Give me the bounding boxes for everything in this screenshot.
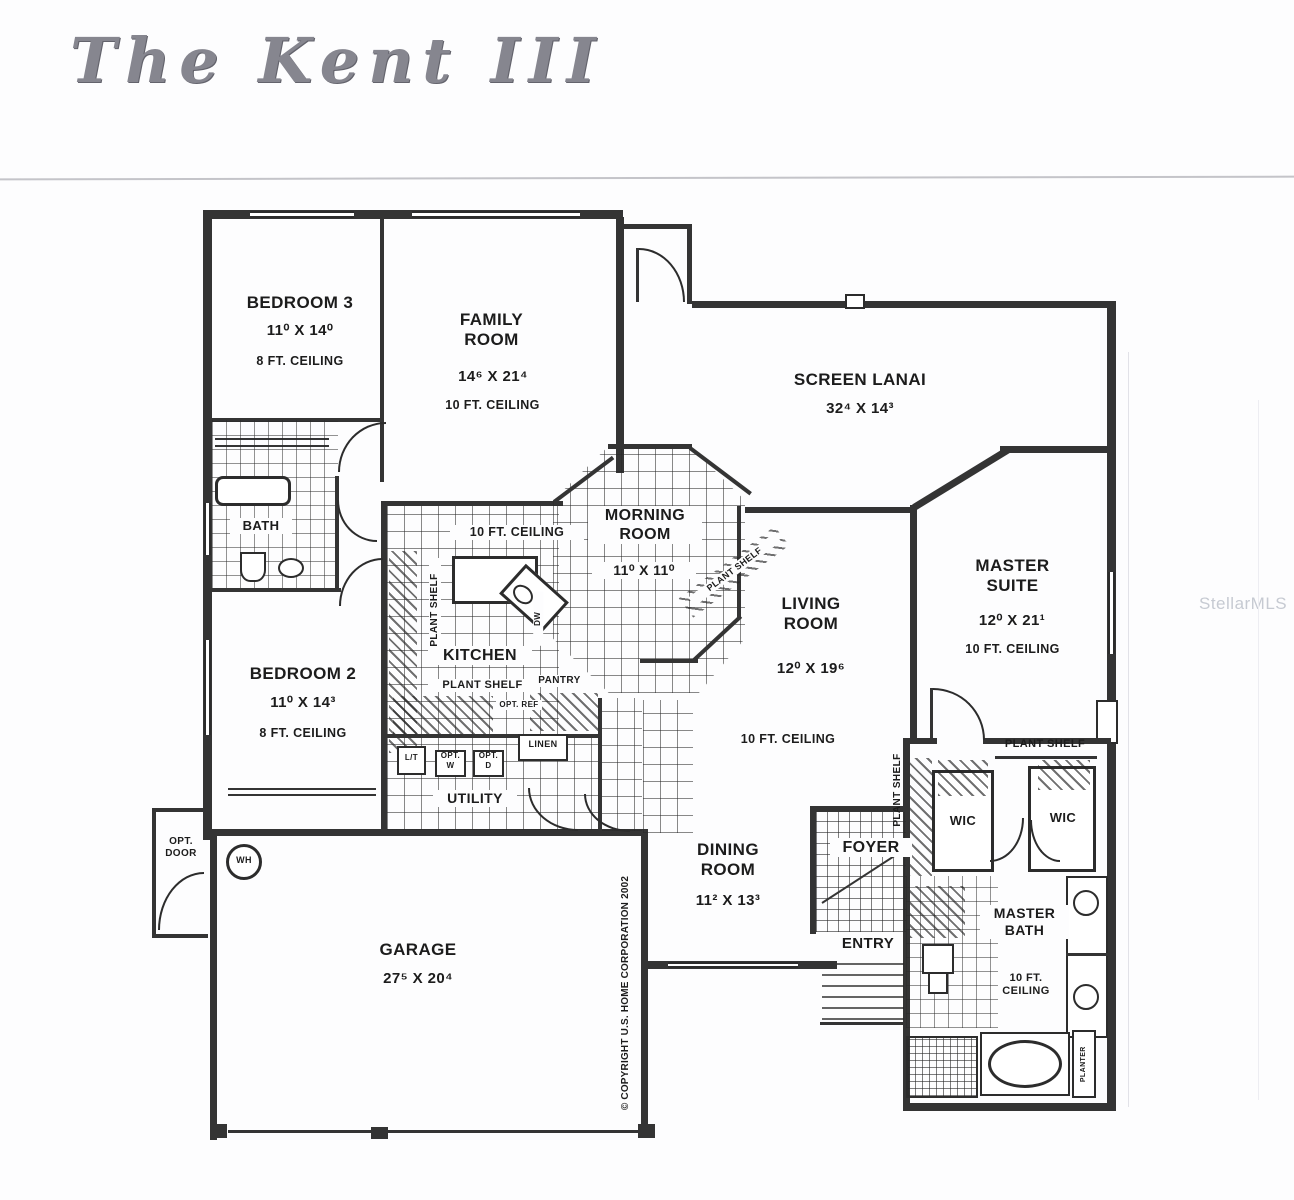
plant-shelf-label: PLANT SHELF xyxy=(995,738,1095,751)
wall-stub xyxy=(210,1124,227,1138)
watermark: StellarMLS xyxy=(1199,594,1287,614)
wall xyxy=(995,756,1097,759)
wall-stub xyxy=(371,1127,388,1139)
room-label-wic-right: WIC xyxy=(1040,810,1086,826)
water-heater-label: WH xyxy=(226,855,262,866)
shelf-line xyxy=(228,794,376,796)
sink xyxy=(278,558,304,578)
dims-dining-room: 11² X 13³ xyxy=(678,892,778,910)
wall xyxy=(1107,446,1116,1111)
wall-diagonal xyxy=(912,446,1011,510)
door-arc xyxy=(639,248,685,302)
toilet xyxy=(922,944,954,974)
sink xyxy=(1073,890,1099,916)
room-label-master-suite: MASTER SUITE xyxy=(960,556,1065,597)
room-label-living-room: LIVING ROOM xyxy=(765,594,857,635)
page-edge-line xyxy=(1128,352,1129,1107)
planter-label: PLANTER xyxy=(1080,1034,1088,1094)
room-label-bedroom2: BEDROOM 2 xyxy=(238,664,368,684)
room-label-garage: GARAGE xyxy=(368,940,468,960)
window xyxy=(250,211,354,218)
toilet xyxy=(240,552,266,582)
wall xyxy=(910,505,917,743)
wall xyxy=(210,829,648,836)
plant-shelf-hatch xyxy=(1038,760,1090,790)
dims-bedroom2: 11⁰ X 14³ xyxy=(255,694,351,712)
wall xyxy=(616,217,624,473)
room-label-bedroom3: BEDROOM 3 xyxy=(235,293,365,313)
tile-floor-hall xyxy=(643,700,693,833)
vanity-divider xyxy=(1066,953,1108,956)
bathtub xyxy=(215,476,291,506)
wall xyxy=(152,808,156,938)
door-arc xyxy=(933,688,985,740)
opt-washer-label: OPT. W xyxy=(437,751,464,770)
ceiling-master-bath: 10 FT. CEILING xyxy=(994,972,1058,998)
ceiling-master-suite: 10 FT. CEILING xyxy=(955,642,1070,657)
lanai-post xyxy=(845,294,865,309)
garage-door xyxy=(228,1130,374,1133)
linen-label: LINEN xyxy=(521,739,565,750)
wall xyxy=(152,934,208,938)
tub xyxy=(988,1040,1062,1088)
room-label-kitchen: KITCHEN xyxy=(428,646,532,665)
plan-title: The Kent III xyxy=(70,24,605,97)
room-label-wic-left: WIC xyxy=(940,813,986,829)
plant-shelf-label: PLANT SHELF xyxy=(428,679,537,692)
wall xyxy=(692,301,1115,308)
plant-shelf-label: PLANT SHELF xyxy=(429,558,441,662)
garage-door xyxy=(388,1130,640,1133)
dims-screen-lanai: 32⁴ X 14³ xyxy=(785,400,935,418)
sink xyxy=(1073,984,1099,1010)
room-label-utility: UTILITY xyxy=(433,790,517,807)
shower xyxy=(906,1036,978,1098)
door-arc xyxy=(337,500,377,542)
dims-master-suite: 12⁰ X 21¹ xyxy=(962,612,1062,630)
wall xyxy=(687,224,692,304)
ceiling-living-room: 10 FT. CEILING xyxy=(728,732,848,747)
door-arc xyxy=(990,818,1024,862)
wall xyxy=(210,836,217,1140)
plant-shelf-label: PLANT SHELF xyxy=(892,740,904,840)
header-divider xyxy=(0,176,1294,181)
room-label-foyer: FOYER xyxy=(830,838,912,857)
dims-morning-room: 11⁰ X 11⁰ xyxy=(592,562,696,579)
wall xyxy=(335,476,339,590)
dims-garage: 27⁵ X 20⁴ xyxy=(366,970,470,988)
door-arc xyxy=(338,422,386,472)
wall xyxy=(1107,301,1116,453)
opt-door-label: OPT. DOOR xyxy=(158,836,204,860)
room-label-morning-room: MORNING ROOM xyxy=(588,506,702,544)
window xyxy=(204,503,211,555)
dims-family-room: 14⁶ X 21⁴ xyxy=(443,368,543,386)
dims-living-room: 12⁰ X 19⁶ xyxy=(763,660,859,678)
wall-stub xyxy=(638,1124,655,1138)
wall xyxy=(903,1103,1116,1111)
wall xyxy=(820,1022,906,1025)
room-label-master-bath: MASTER BATH xyxy=(980,905,1069,939)
window xyxy=(412,211,580,218)
wall xyxy=(608,444,692,449)
window xyxy=(1108,572,1115,654)
opt-dryer-label: OPT. D xyxy=(475,751,502,770)
ceiling-bedroom3: 8 FT. CEILING xyxy=(245,354,355,369)
laundry-tub-label: L/T xyxy=(399,753,424,763)
dishwasher-label: DW xyxy=(533,592,543,646)
ceiling-kitchen: 10 FT. CEILING xyxy=(450,525,584,540)
room-label-bath: BATH xyxy=(230,518,292,534)
wall xyxy=(211,588,341,592)
shelf-line xyxy=(228,788,376,790)
counter-hatch xyxy=(393,696,493,734)
wall xyxy=(1000,446,1112,453)
window xyxy=(668,962,798,968)
plant-shelf-hatch xyxy=(938,760,988,796)
window xyxy=(204,640,211,735)
steps-hatch xyxy=(910,886,965,938)
dims-bedroom3: 11⁰ X 14⁰ xyxy=(250,322,350,340)
door-arc xyxy=(158,872,204,930)
plant-shelf-hatch xyxy=(908,758,932,876)
ceiling-bedroom2: 8 FT. CEILING xyxy=(248,726,358,741)
opt-ref-label: OPT. REF xyxy=(496,700,542,710)
room-label-dining-room: DINING ROOM xyxy=(682,840,774,881)
floor-plan-page: The Kent III StellarMLS xyxy=(0,0,1294,1200)
toilet xyxy=(928,972,948,994)
wall xyxy=(616,224,692,229)
copyright-note: © COPYRIGHT U.S. HOME CORPORATION 2002 xyxy=(620,844,632,1142)
wall xyxy=(641,833,648,1135)
door-arc xyxy=(339,558,383,606)
pantry-hatch xyxy=(530,693,598,731)
wall xyxy=(640,659,698,663)
ceiling-family-room: 10 FT. CEILING xyxy=(435,398,550,413)
room-label-family-room: FAMILY ROOM xyxy=(443,310,540,351)
pantry-label: PANTRY xyxy=(530,675,589,687)
wall xyxy=(745,507,917,513)
wall xyxy=(152,808,208,812)
entry-steps xyxy=(822,962,904,1020)
room-label-entry: ENTRY xyxy=(828,935,908,953)
room-label-screen-lanai: SCREEN LANAI xyxy=(750,370,970,390)
scan-line xyxy=(1258,400,1259,1100)
